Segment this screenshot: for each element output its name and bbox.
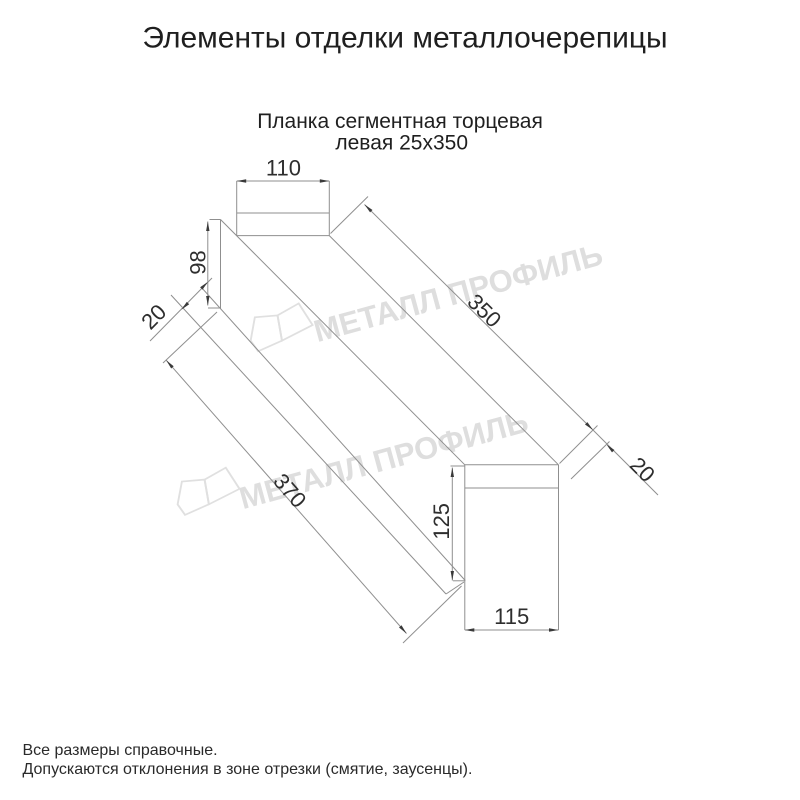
svg-text:115: 115	[494, 604, 529, 629]
svg-text:Все размеры справочные.: Все размеры справочные.	[23, 742, 218, 759]
svg-text:98: 98	[186, 250, 211, 274]
svg-text:Элементы отделки металлочерепи: Элементы отделки металлочерепицы	[142, 22, 667, 55]
svg-text:Допускаются отклонения в зоне: Допускаются отклонения в зоне отрезки (с…	[23, 761, 473, 778]
svg-text:Планка сегментная торцевая: Планка сегментная торцевая	[257, 110, 543, 133]
svg-text:левая 25х350: левая 25х350	[335, 132, 468, 155]
svg-text:110: 110	[266, 156, 301, 181]
svg-text:125: 125	[429, 503, 454, 540]
